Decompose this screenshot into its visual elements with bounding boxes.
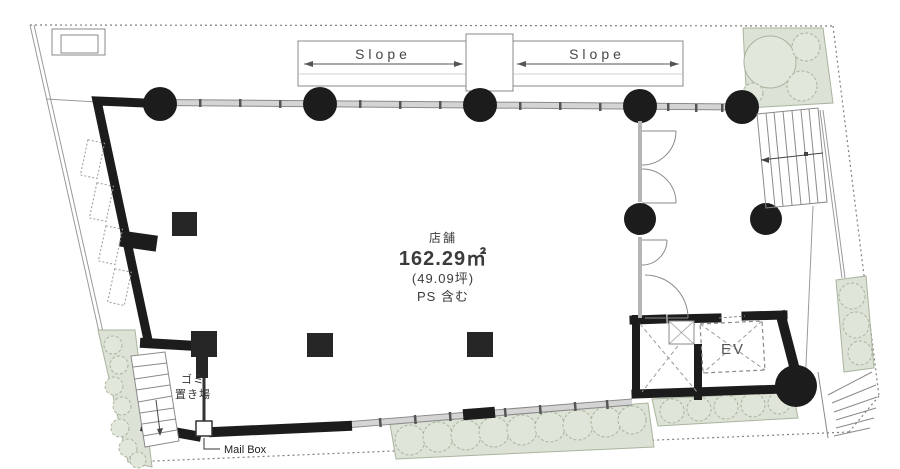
slope-label-right: Slope bbox=[569, 46, 625, 62]
mailbox-leader-line bbox=[204, 438, 220, 449]
garbage-room-label-line2: 置き場 bbox=[175, 388, 211, 401]
planting-bed-right bbox=[836, 276, 874, 372]
l-shaped-wall-column bbox=[191, 331, 217, 378]
floor-plan-page: Slope Slope 店舗 162.29㎡ (49.09坪) PS 含む EV… bbox=[0, 0, 900, 469]
round-column-marker bbox=[143, 87, 177, 121]
unit-area-sqm-label: 162.29㎡ bbox=[399, 246, 487, 270]
square-column-marker bbox=[172, 212, 197, 236]
round-column-marker bbox=[725, 90, 759, 124]
unit-ps-note-label: PS 含む bbox=[417, 289, 469, 304]
wall-left bbox=[97, 101, 148, 340]
mailbox-label: Mail Box bbox=[224, 444, 267, 456]
square-column-marker bbox=[467, 332, 493, 357]
elevator-label: EV bbox=[721, 341, 745, 358]
square-column-marker bbox=[307, 333, 333, 357]
wall-bottom-left bbox=[214, 426, 347, 432]
wall-garbage-top bbox=[145, 343, 196, 346]
door-swing-icon bbox=[642, 131, 676, 165]
wall-lobby-right bbox=[781, 316, 794, 366]
planting-bed-top-right bbox=[743, 28, 833, 108]
round-column-marker bbox=[775, 365, 817, 407]
exterior-stair-top-right bbox=[757, 108, 827, 208]
round-column-marker bbox=[463, 88, 497, 122]
slope-ramp bbox=[298, 34, 683, 91]
fence-line-right bbox=[805, 110, 845, 388]
corner-steps-bottom-right bbox=[818, 372, 877, 438]
unit-area-tsubo-label: (49.09坪) bbox=[412, 271, 474, 286]
ramp-landing-box bbox=[466, 34, 513, 91]
garbage-room-label-line1: ゴミ bbox=[181, 372, 205, 386]
wall-lobby-bottom bbox=[636, 389, 783, 394]
elevator-block bbox=[640, 316, 765, 392]
round-columns bbox=[143, 87, 817, 407]
door-swing-icon bbox=[642, 169, 676, 203]
round-column-marker bbox=[624, 203, 656, 235]
unit-name-label: 店舗 bbox=[429, 231, 457, 245]
round-column-marker bbox=[303, 87, 337, 121]
door-swing-icon bbox=[645, 275, 688, 318]
utility-box bbox=[52, 29, 105, 55]
slope-label-left: Slope bbox=[355, 46, 411, 62]
elevator-door bbox=[719, 316, 745, 318]
round-column-marker bbox=[623, 89, 657, 123]
door-swing-icon bbox=[642, 240, 667, 265]
floor-plan-drawing: Slope Slope 店舗 162.29㎡ (49.09坪) PS 含む EV… bbox=[0, 0, 900, 469]
